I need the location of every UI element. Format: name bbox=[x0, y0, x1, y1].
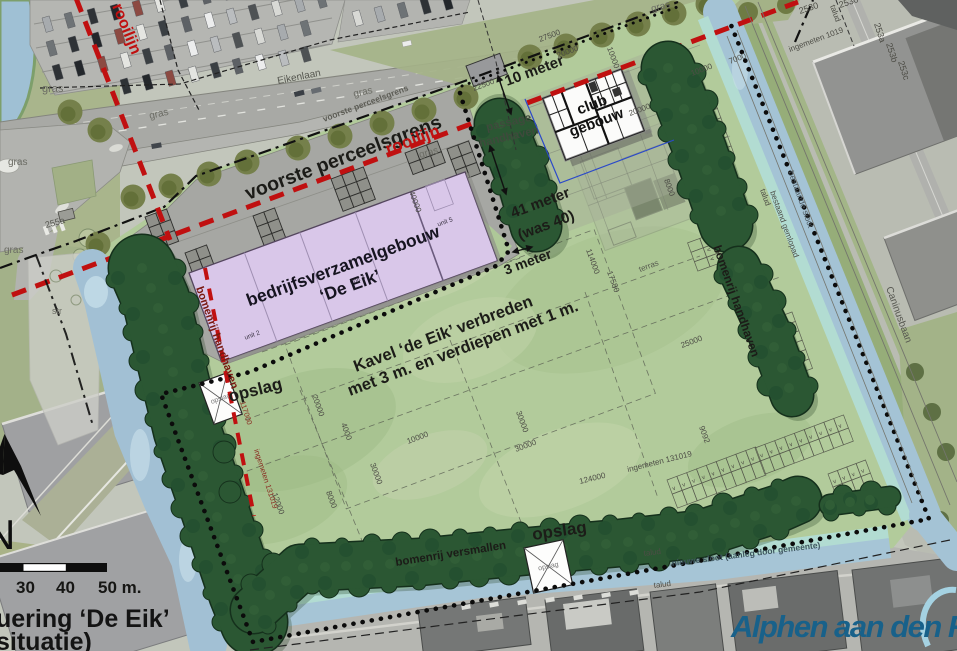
svg-text:gras: gras bbox=[8, 157, 27, 168]
svg-text:Alphen aan den Rij: Alphen aan den Rij bbox=[730, 609, 957, 644]
svg-text:situatie): situatie) bbox=[0, 628, 92, 651]
svg-text:N: N bbox=[0, 511, 15, 558]
svg-text:50 m.: 50 m. bbox=[98, 578, 141, 597]
svg-text:str: str bbox=[52, 306, 62, 316]
svg-text:30: 30 bbox=[16, 578, 35, 597]
svg-text:40: 40 bbox=[56, 578, 75, 597]
svg-text:gras: gras bbox=[4, 245, 23, 256]
svg-text:gras: gras bbox=[42, 83, 64, 95]
